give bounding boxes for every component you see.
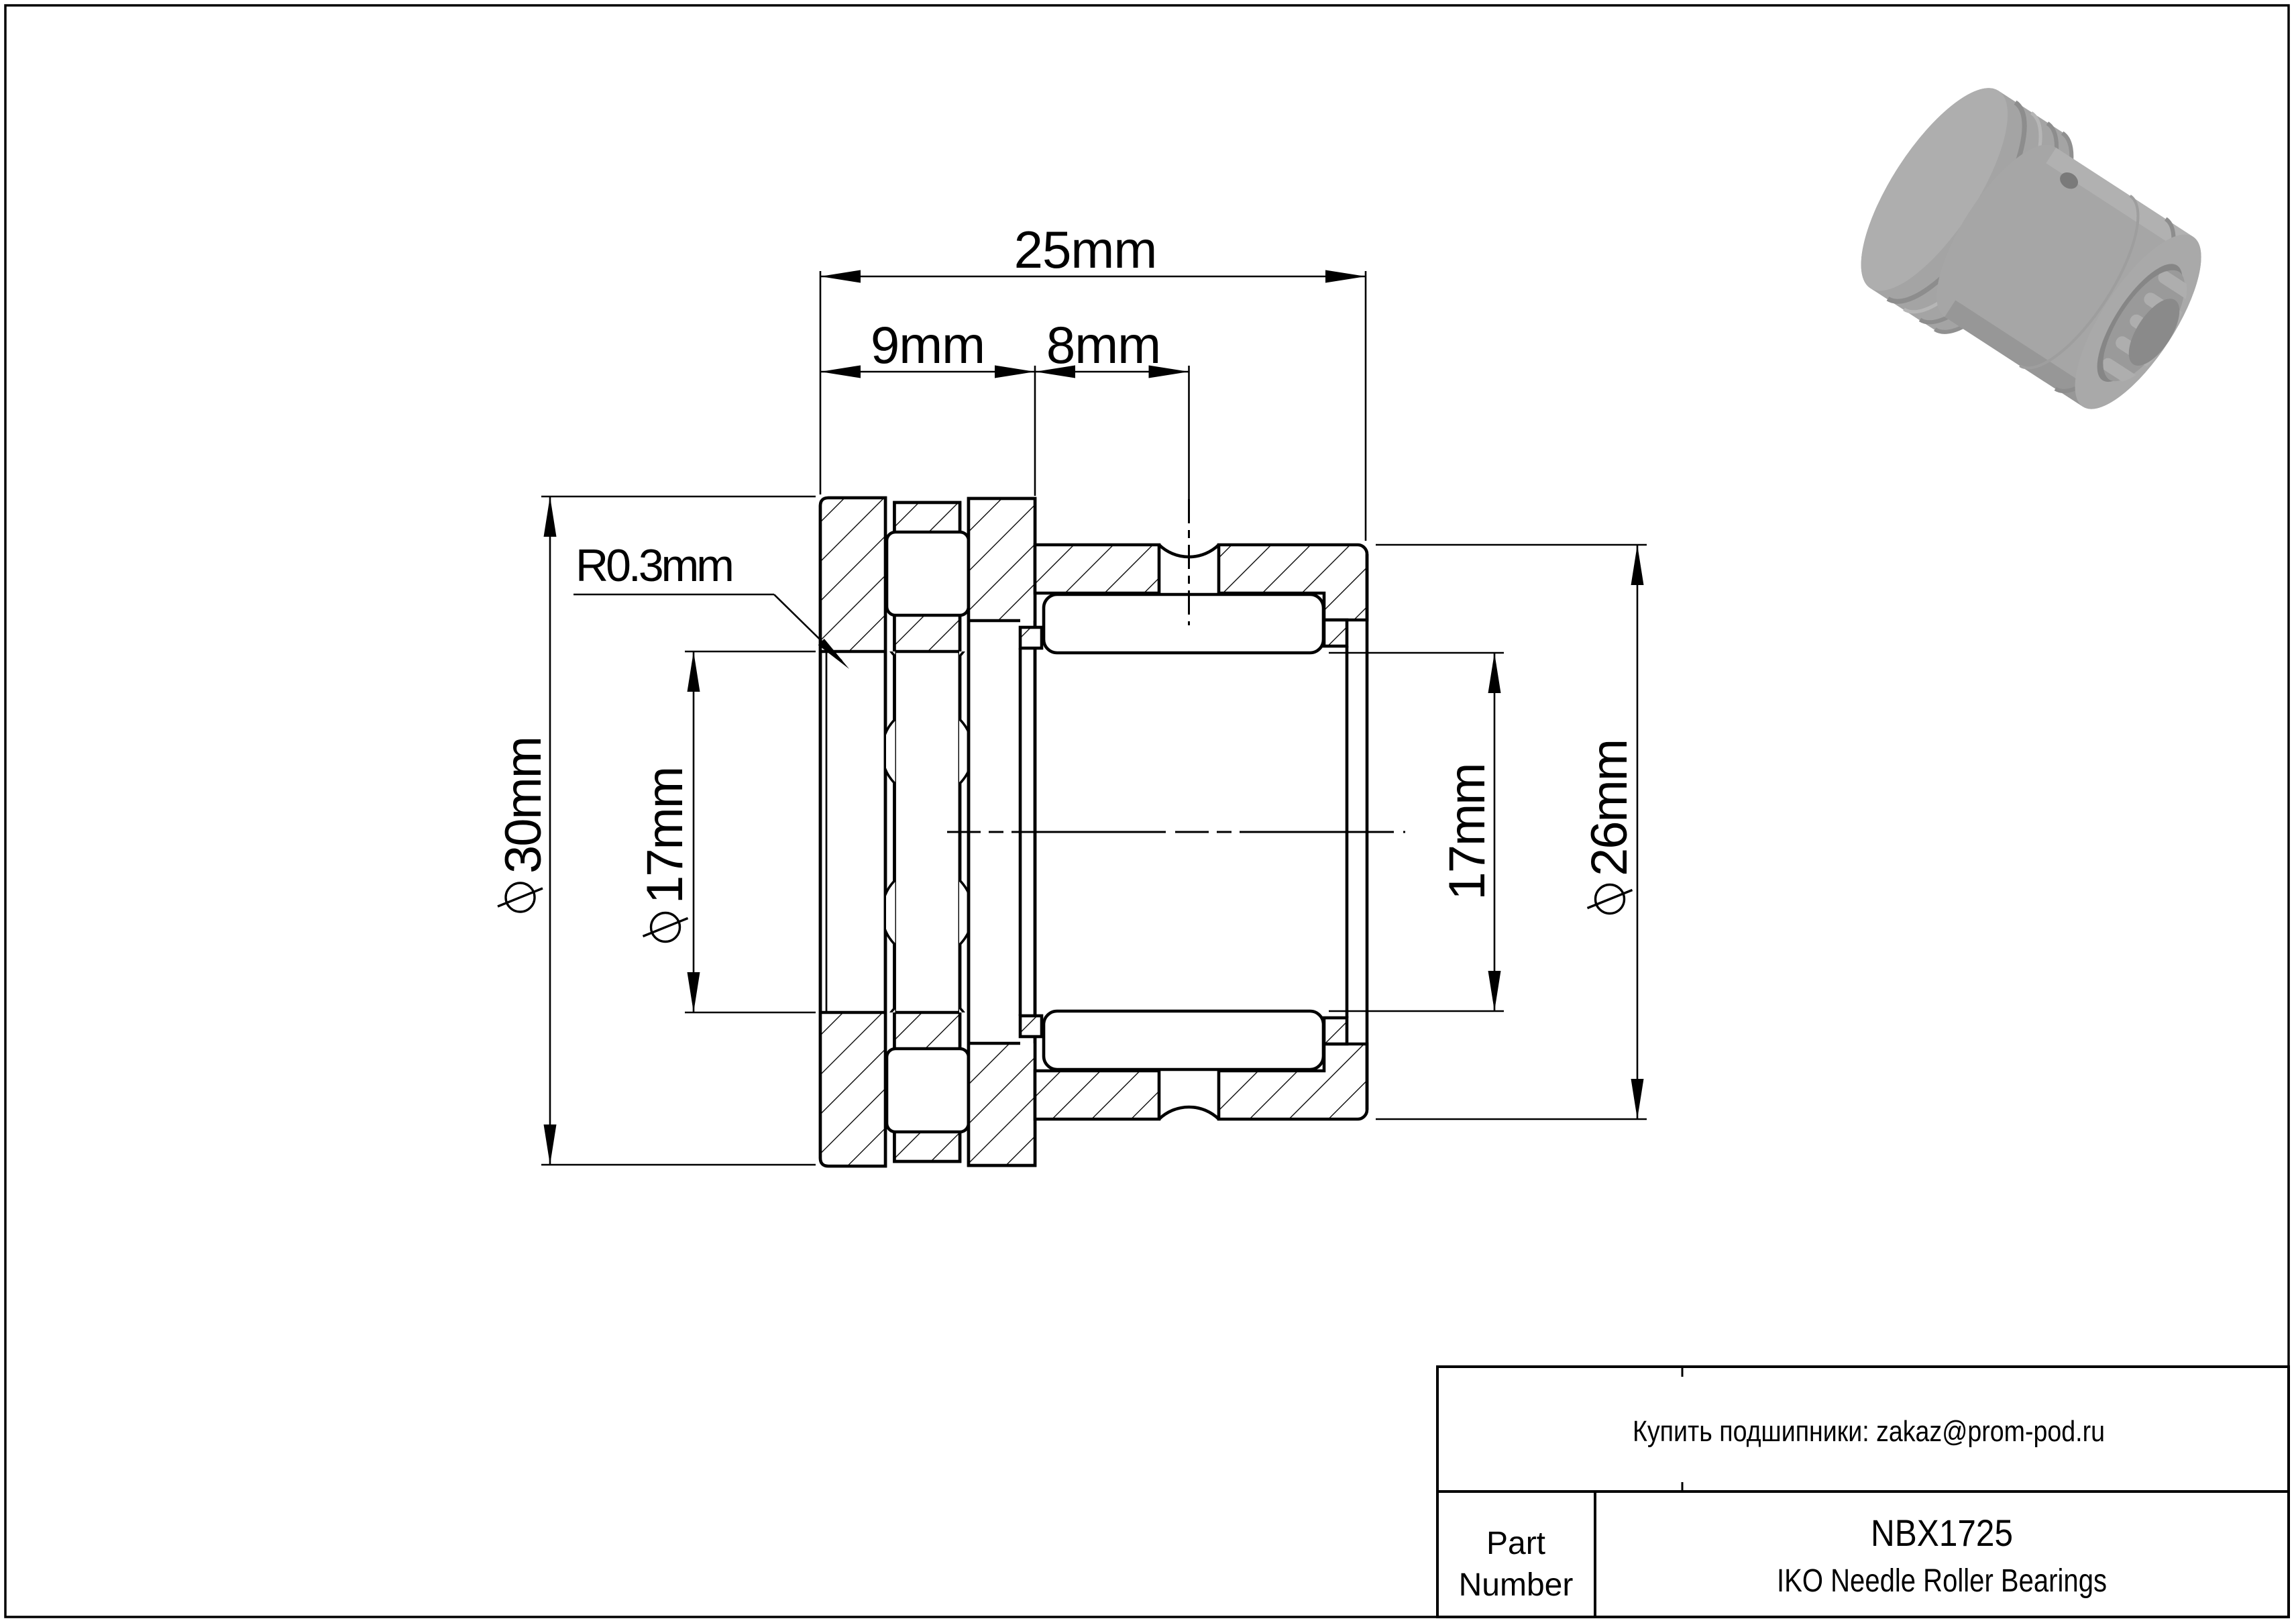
svg-text:30mm: 30mm <box>495 737 552 874</box>
svg-text:Number: Number <box>1459 1567 1574 1603</box>
svg-text:17mm: 17mm <box>637 768 694 904</box>
svg-text:NBX1725: NBX1725 <box>1871 1512 2013 1554</box>
svg-text:R0.3mm: R0.3mm <box>576 540 732 591</box>
svg-text:Part: Part <box>1486 1526 1545 1561</box>
svg-text:17mm: 17mm <box>1439 764 1496 900</box>
svg-text:8mm: 8mm <box>1046 315 1160 374</box>
svg-text:9mm: 9mm <box>871 315 985 374</box>
svg-text:26mm: 26mm <box>1581 740 1638 876</box>
svg-text:Купить подшипники: zakaz@prom-: Купить подшипники: zakaz@prom-pod.ru <box>1633 1415 2105 1448</box>
svg-text:25mm: 25mm <box>1014 220 1157 279</box>
svg-text:IKO Needle Roller Bearings: IKO Needle Roller Bearings <box>1777 1563 2107 1599</box>
